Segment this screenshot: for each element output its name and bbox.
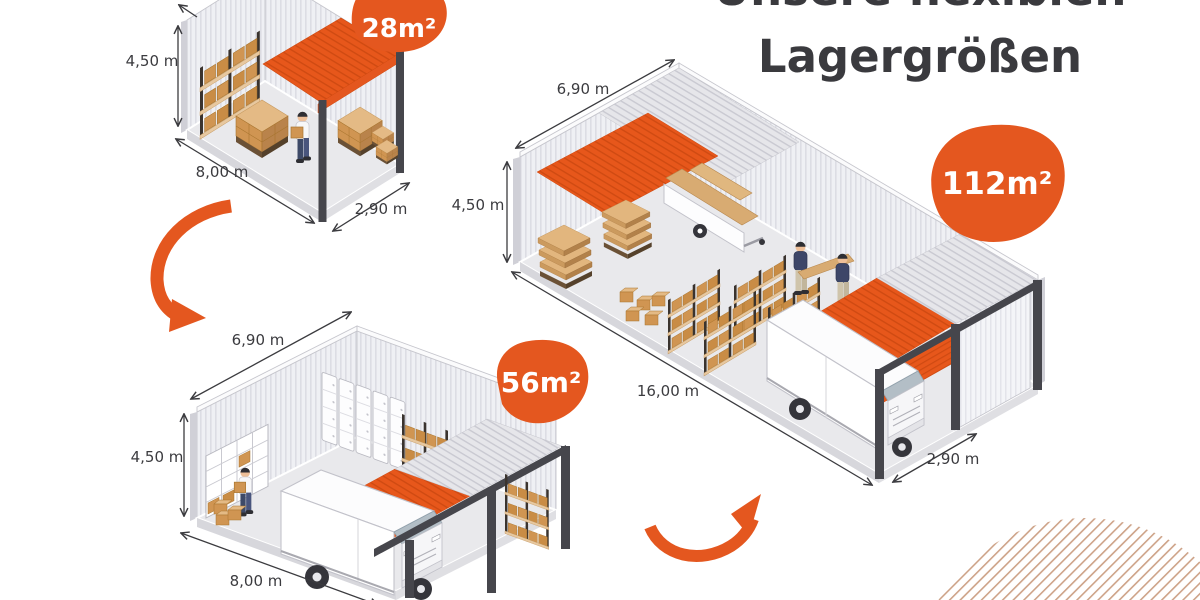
wall-edge-rim <box>190 412 197 521</box>
infographic-lagergroessen: Unsere flexiblen Lagergrößen 4,50 m 8,00… <box>0 0 1200 600</box>
wall-edge-rim <box>513 157 520 265</box>
page-title: Lagergrößen <box>758 30 1082 83</box>
illustration-canvas: Unsere flexiblen Lagergrößen 4,50 m 8,00… <box>0 0 1200 600</box>
dim-label-28-length: 8,00 m <box>196 163 249 181</box>
door-post <box>1033 280 1042 390</box>
door-post <box>951 324 960 430</box>
badge-112-label: 112m² <box>942 166 1053 202</box>
door-post <box>487 489 496 593</box>
wall-edge-rim <box>181 20 187 133</box>
page-title-clipped: Unsere flexiblen <box>714 0 1127 16</box>
badge-28-label: 28m² <box>362 14 437 44</box>
dim-label-56-height: 4,50 m <box>131 448 184 466</box>
dim-label-28-height: 4,50 m <box>126 52 179 70</box>
door-post <box>405 540 414 598</box>
dim-label-112-height: 4,50 m <box>452 196 505 214</box>
dim-label-56-length: 8,00 m <box>230 572 283 590</box>
dim-label-112-back: 6,90 m <box>557 80 610 98</box>
badge-56-label: 56m² <box>501 366 581 399</box>
dim-label-112-length: 16,00 m <box>637 382 699 400</box>
door-post <box>561 446 570 549</box>
door-post <box>319 100 327 222</box>
dim-label-28-depth: 2,90 m <box>355 200 408 218</box>
dim-label-112-depth: 2,90 m <box>927 450 980 468</box>
door-post <box>875 369 884 479</box>
dim-label-56-back: 6,90 m <box>232 331 285 349</box>
